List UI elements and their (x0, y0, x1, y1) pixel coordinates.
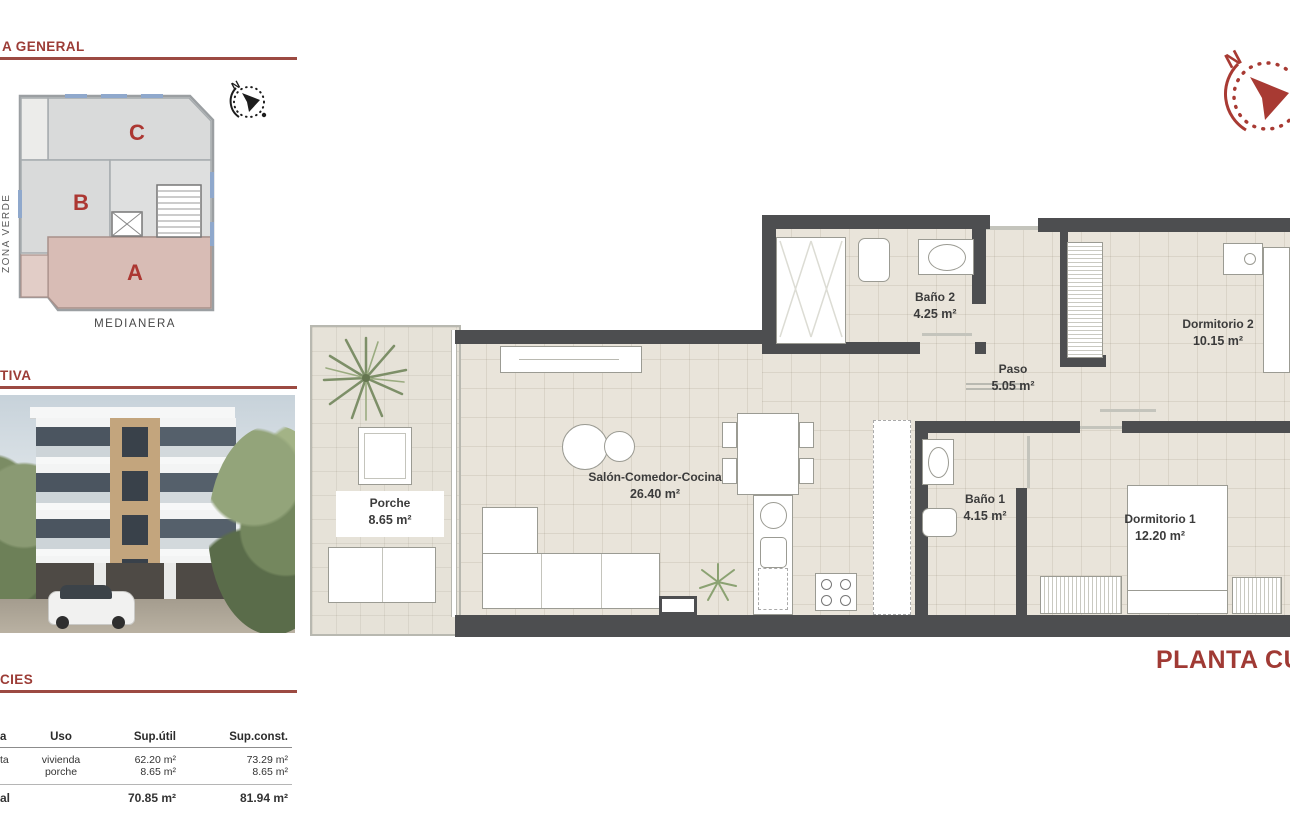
car-wheel-left (56, 616, 69, 629)
round-table-large (562, 424, 608, 470)
wardrobe (1067, 242, 1103, 358)
wall (762, 215, 776, 354)
header-planta: a (0, 731, 18, 743)
wall (1038, 218, 1290, 232)
glass-door-porch (451, 330, 457, 617)
zone-a-notch (21, 255, 48, 297)
palm-plant (318, 330, 414, 426)
sink-cabinet (922, 439, 954, 485)
wall (975, 342, 986, 354)
cell-sup-const: 73.29 m² (180, 754, 292, 766)
room-area: 10.15 m² (1138, 333, 1290, 349)
header-uso: Uso (18, 731, 104, 743)
room-name: Dormitorio 1 (1080, 512, 1240, 528)
room-area: 26.40 m² (555, 486, 755, 502)
bed-dorm2 (1263, 247, 1290, 373)
wall (775, 344, 788, 354)
chair (799, 422, 814, 448)
cell-sup-util: 62.20 m² (104, 754, 180, 766)
rule-general (0, 57, 297, 60)
room-area: 12.20 m² (1080, 528, 1240, 544)
cell-sup-util: 8.65 m² (104, 766, 180, 778)
plan-title: PLANTA CUARTA (1156, 646, 1290, 675)
sink-cabinet (918, 239, 974, 275)
room-name: Baño 1 (925, 492, 1045, 508)
room-area: 5.05 m² (958, 378, 1068, 394)
section-title-general: A GENERAL (2, 39, 85, 54)
compass-icon: N (1210, 40, 1290, 152)
kitchen-sink (760, 502, 787, 529)
site-compass-icon: N (224, 76, 274, 126)
car-wheel-right (112, 616, 125, 629)
toilet (858, 238, 890, 282)
header-sup-const: Sup.const. (180, 731, 292, 743)
header-sup-util: Sup.útil (104, 731, 180, 743)
total-sup-const: 81.94 m² (180, 791, 292, 805)
room-area: 4.15 m² (925, 508, 1045, 524)
porch-table (358, 427, 412, 485)
section-title-perspective: TIVA (0, 368, 31, 383)
bath2-door-line (922, 333, 972, 336)
surfaces-header-row: a Uso Sup.útil Sup.const. (0, 731, 292, 748)
cell-sup-const: 8.65 m² (180, 766, 292, 778)
porch-lounger (328, 547, 436, 603)
rule-perspective (0, 386, 297, 389)
window-radiator (1232, 577, 1282, 614)
cell-uso: vivienda (18, 754, 104, 766)
zone-a-label: A (127, 260, 143, 285)
room-label-bano2: Baño 2 4.25 m² (870, 290, 1000, 322)
round-table-small (604, 431, 635, 462)
site-room-topleft (21, 98, 48, 160)
stairs-icon (157, 185, 201, 237)
kitchen-appliance (760, 537, 787, 568)
total-sup-util: 70.85 m² (104, 791, 180, 805)
dorm1-door-line (1080, 426, 1122, 429)
wall (762, 215, 990, 229)
surfaces-total-row: al 70.85 m² 81.94 m² (0, 785, 292, 805)
terrace-door (659, 596, 697, 615)
surfaces-table: a Uso Sup.útil Sup.const. ta vivienda 62… (0, 731, 292, 805)
bed-foot (1127, 590, 1228, 614)
room-label-dorm1: Dormitorio 1 12.20 m² (1080, 512, 1240, 544)
zone-b-label: B (73, 190, 89, 215)
floor-plan: Porche 8.65 m² Salón-Comedor-Cocina 26.4… (310, 212, 1290, 640)
compass-arrow (1250, 77, 1289, 120)
shower-x (776, 237, 846, 344)
room-name: Baño 2 (870, 290, 1000, 306)
chair (722, 422, 737, 448)
table-row: ta vivienda 62.20 m² 73.29 m² (0, 754, 292, 766)
small-plant (696, 560, 740, 604)
room-area: 8.65 m² (340, 512, 440, 528)
room-name: Salón-Comedor-Cocina (555, 470, 755, 486)
zone-c-label: C (129, 120, 145, 145)
window-line (986, 226, 1038, 230)
wall (1122, 421, 1290, 433)
room-label-porche: Porche 8.65 m² (340, 496, 440, 528)
cell-planta: ta (0, 754, 18, 766)
nightstand (1223, 243, 1263, 275)
window-radiator (1040, 576, 1122, 614)
medianera-label: MEDIANERA (60, 318, 210, 330)
car-windows (60, 585, 112, 599)
stove (815, 573, 857, 611)
cell-uso: porche (18, 766, 104, 778)
wall (455, 330, 775, 344)
site-compass-n: N (230, 79, 243, 93)
site-compass-arrow (242, 93, 260, 112)
section-title-surfaces: CIES (0, 672, 33, 687)
wall (455, 615, 1290, 637)
bath1-door-leaf (1027, 436, 1030, 488)
room-name: Paso (958, 362, 1068, 378)
room-name: Dormitorio 2 (1138, 317, 1290, 333)
dorm2-door-line (1100, 409, 1156, 412)
floorplan-sheet: { "colors":{"accent":"#9c3c36","wall":"#… (0, 0, 1290, 840)
chair (799, 458, 814, 484)
building-render-photo (0, 395, 295, 633)
sofa (482, 553, 660, 609)
room-label-paso: Paso 5.05 m² (958, 362, 1068, 394)
table-row: porche 8.65 m² 8.65 m² (0, 766, 292, 778)
total-label: al (0, 791, 18, 805)
kitchen-counter-right (873, 420, 911, 615)
rule-surfaces (0, 690, 297, 693)
wall (915, 421, 1080, 433)
room-label-dorm2: Dormitorio 2 10.15 m² (1138, 317, 1290, 349)
room-label-salon: Salón-Comedor-Cocina 26.40 m² (555, 470, 755, 502)
room-area: 4.25 m² (870, 306, 1000, 322)
compass-n: N (1221, 46, 1245, 73)
room-name: Porche (340, 496, 440, 512)
sideboard (500, 346, 642, 373)
zona-verde-label: ZONA VERDE (1, 163, 12, 273)
room-label-bano1: Baño 1 4.15 m² (925, 492, 1045, 524)
